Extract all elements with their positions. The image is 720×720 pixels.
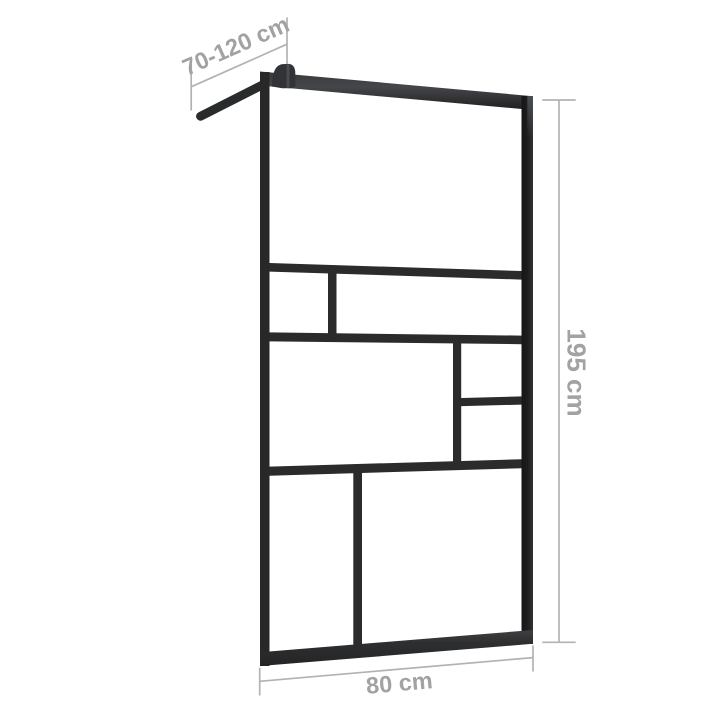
svg-text:195 cm: 195 cm <box>561 328 591 416</box>
